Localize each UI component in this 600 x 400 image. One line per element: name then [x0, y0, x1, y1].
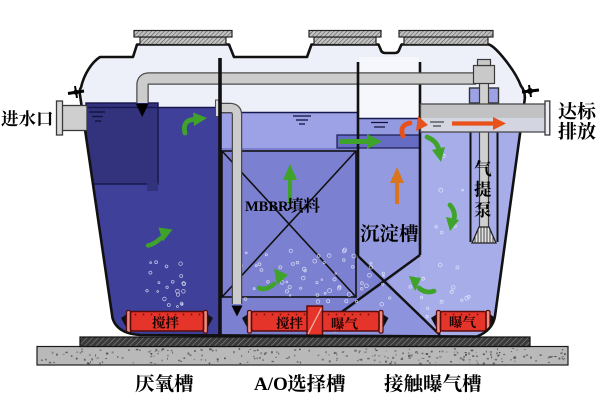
svg-text:MBBR: MBBR [245, 199, 289, 215]
svg-text:A/O: A/O [254, 374, 288, 395]
